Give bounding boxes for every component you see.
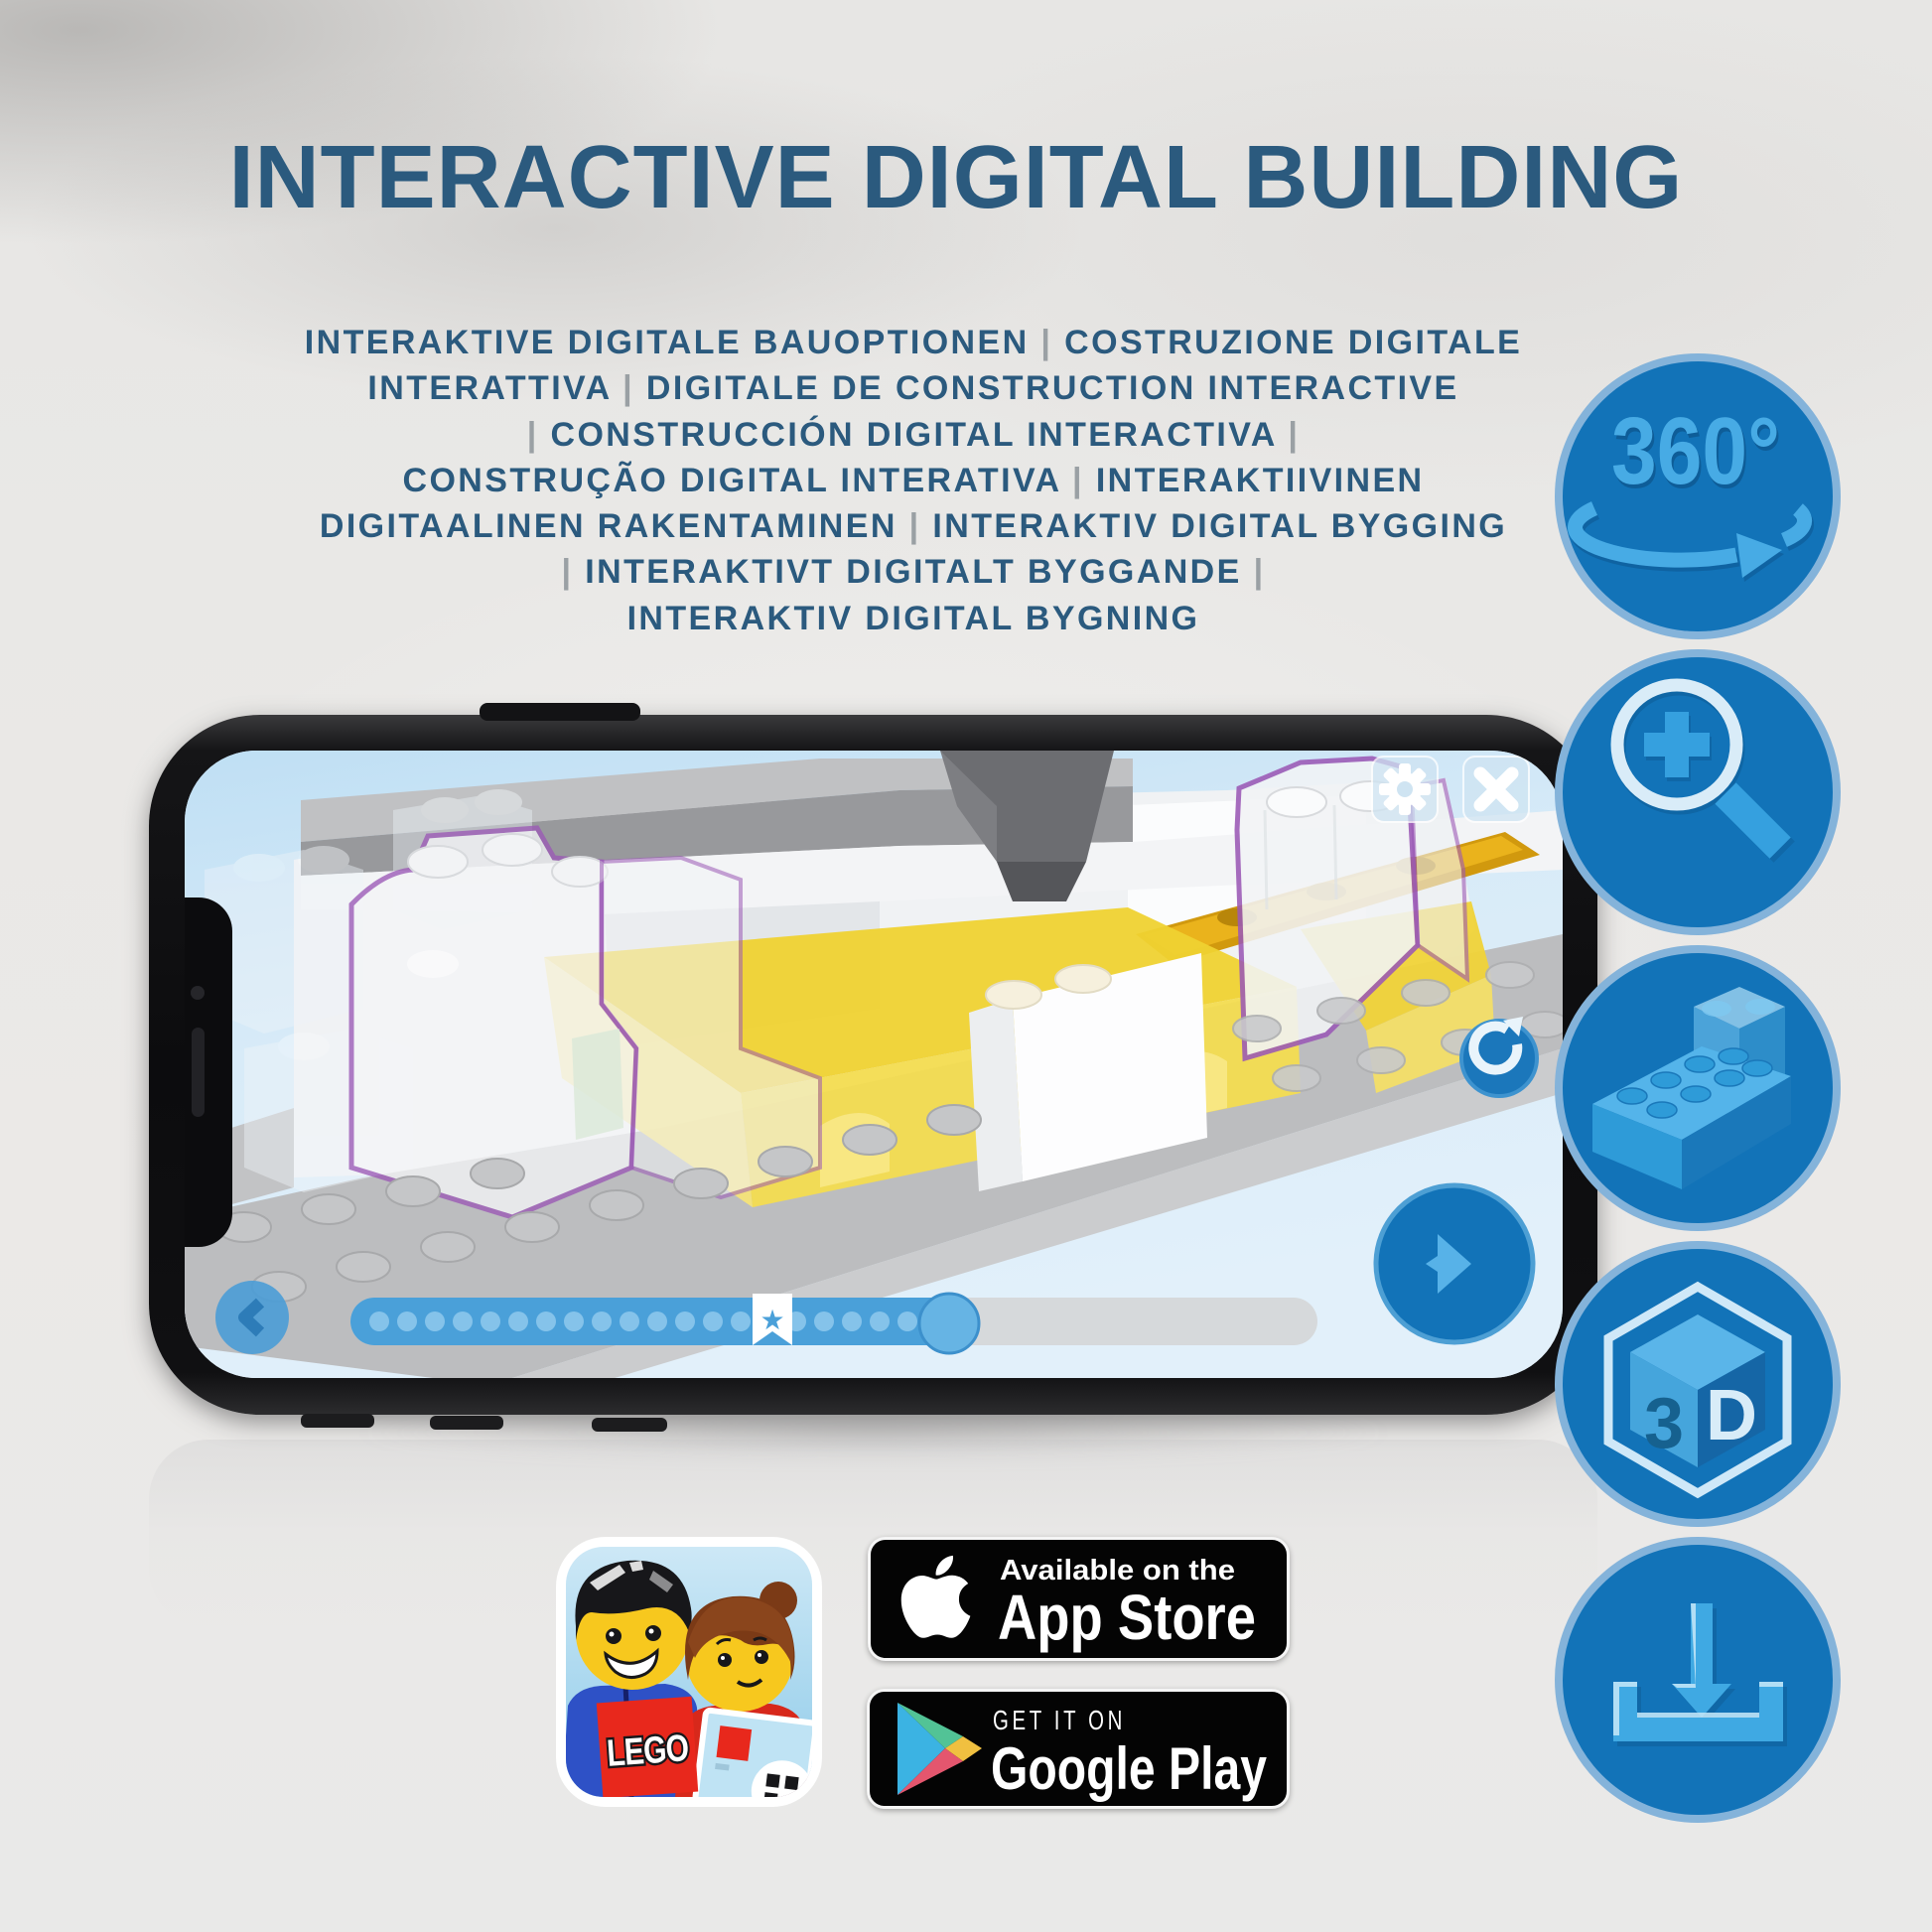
svg-text:D: D (1706, 1376, 1757, 1455)
svg-text:LEGO: LEGO (606, 1727, 690, 1775)
svg-text:★: ★ (759, 1305, 784, 1335)
svg-text:App Store: App Store (998, 1582, 1256, 1653)
svg-text:Google Play: Google Play (991, 1735, 1267, 1802)
svg-text:360°: 360° (1611, 398, 1780, 504)
svg-text:3: 3 (1644, 1384, 1684, 1463)
svg-text:GET IT ON: GET IT ON (993, 1705, 1126, 1735)
